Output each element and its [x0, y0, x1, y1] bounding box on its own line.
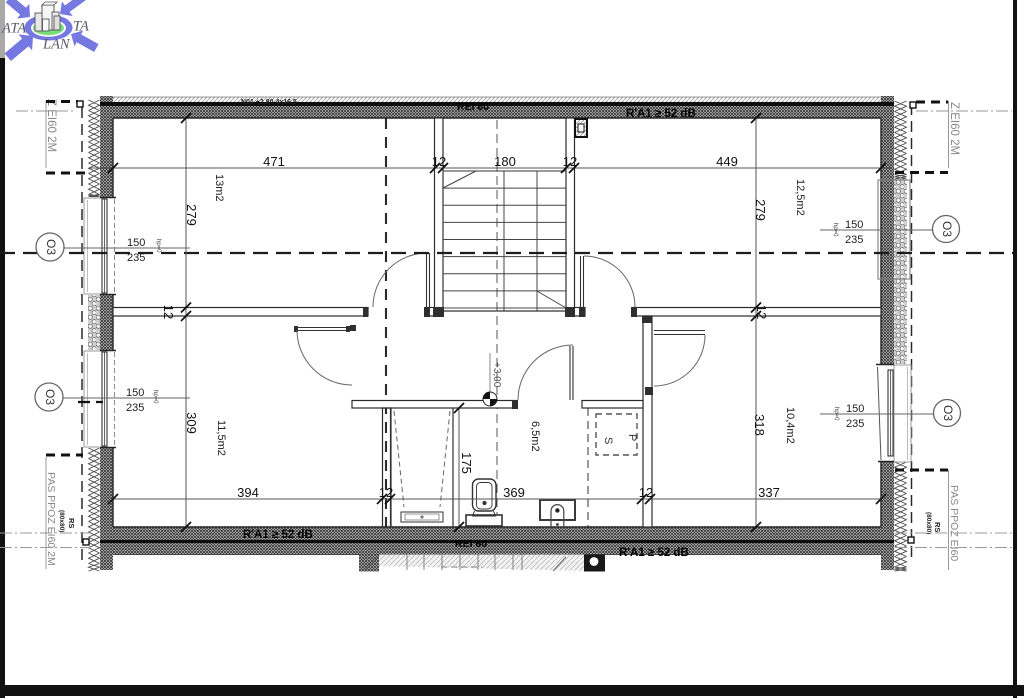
- svg-text:Z EI60 2M: Z EI60 2M: [45, 99, 57, 152]
- svg-text:(80x80): (80x80): [925, 512, 932, 534]
- svg-text:318: 318: [752, 414, 767, 436]
- svg-text:6,5m2: 6,5m2: [529, 421, 541, 452]
- svg-text:(80x80): (80x80): [58, 510, 65, 532]
- svg-text:369: 369: [503, 485, 525, 500]
- svg-text:hp=0: hp=0: [152, 390, 158, 404]
- svg-text:12: 12: [563, 154, 577, 169]
- svg-text:13m2: 13m2: [213, 174, 225, 202]
- svg-text:279: 279: [184, 204, 199, 226]
- svg-text:O3: O3: [44, 239, 58, 255]
- svg-text:R'A1 ≥ 52 dB: R'A1 ≥ 52 dB: [619, 547, 689, 559]
- svg-text:+3,00: +3,00: [491, 362, 502, 388]
- svg-text:12: 12: [639, 485, 653, 500]
- svg-text:180: 180: [494, 154, 516, 169]
- svg-text:11,5m2: 11,5m2: [215, 420, 227, 456]
- svg-text:235: 235: [127, 252, 145, 264]
- svg-text:Z EI60 2M: Z EI60 2M: [948, 102, 960, 155]
- svg-text:P: P: [626, 434, 638, 441]
- svg-text:150: 150: [845, 219, 863, 231]
- svg-text:hp=0: hp=0: [832, 223, 838, 237]
- svg-text:R'A1 ≥ 52 dB: R'A1 ≥ 52 dB: [626, 108, 696, 120]
- svg-text:hp=0: hp=0: [155, 239, 161, 253]
- svg-text:PAS PPOZ EI60 2M: PAS PPOZ EI60 2M: [45, 472, 57, 566]
- svg-text:150: 150: [127, 237, 145, 249]
- svg-text:10,4m2: 10,4m2: [784, 407, 796, 444]
- svg-text:RS: RS: [933, 522, 942, 532]
- svg-text:235: 235: [846, 418, 864, 430]
- svg-text:N01 +2,80 4x16,5: N01 +2,80 4x16,5: [241, 99, 297, 106]
- svg-text:449: 449: [716, 154, 738, 169]
- svg-text:12: 12: [379, 485, 393, 500]
- svg-text:150: 150: [126, 387, 144, 399]
- svg-text:150: 150: [846, 403, 864, 415]
- svg-text:ATA: ATA: [1, 21, 26, 37]
- svg-text:TA: TA: [73, 19, 89, 35]
- svg-text:REI 60: REI 60: [455, 538, 487, 550]
- svg-text:REI 60: REI 60: [457, 101, 489, 113]
- svg-text:471: 471: [263, 154, 285, 169]
- svg-text:235: 235: [126, 402, 144, 414]
- svg-text:235: 235: [845, 234, 863, 246]
- svg-text:R'A1 ≥ 52 dB: R'A1 ≥ 52 dB: [243, 529, 313, 541]
- svg-text:RS: RS: [67, 518, 76, 528]
- svg-text:337: 337: [758, 485, 780, 500]
- svg-text:S: S: [602, 437, 614, 444]
- svg-text:O3: O3: [941, 405, 955, 421]
- svg-text:O3: O3: [43, 389, 57, 405]
- svg-text:12: 12: [161, 305, 176, 319]
- svg-text:12: 12: [432, 154, 446, 169]
- svg-text:12: 12: [754, 305, 769, 319]
- svg-text:279: 279: [753, 199, 768, 221]
- svg-text:12,5m2: 12,5m2: [794, 179, 806, 216]
- svg-text:O3: O3: [940, 221, 954, 237]
- svg-text:309: 309: [184, 412, 199, 434]
- svg-text:LAN: LAN: [42, 37, 71, 53]
- svg-text:394: 394: [237, 485, 259, 500]
- svg-text:hp=0: hp=0: [833, 407, 839, 421]
- svg-text:PAS PPOZ EI60: PAS PPOZ EI60: [948, 485, 960, 561]
- svg-text:175: 175: [459, 452, 474, 474]
